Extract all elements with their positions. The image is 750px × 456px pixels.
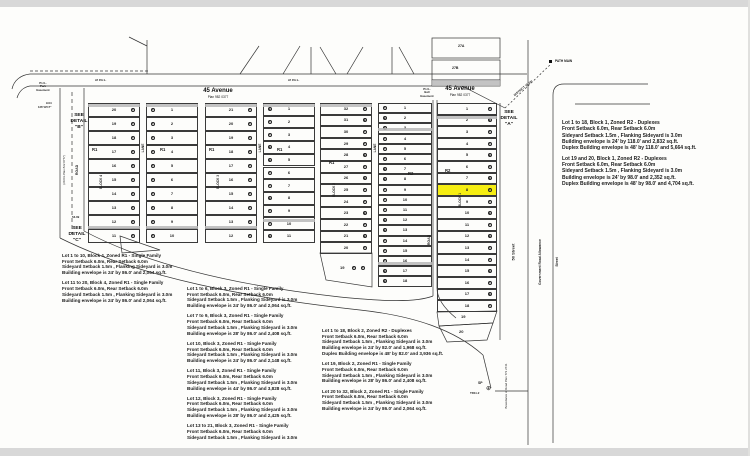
lot: 18 [88, 131, 140, 145]
lot: 23 [320, 207, 372, 219]
utility-circle [488, 234, 492, 238]
utility-circle [488, 176, 492, 180]
lot: 5 [263, 154, 315, 167]
lot: 13 [437, 242, 497, 254]
see-detail-a-callout: SEE DETAIL "A" [492, 110, 526, 129]
utility-circle [151, 220, 155, 224]
utility-circle [383, 208, 387, 212]
note-line: Building envelope is 24' by 86.0' and 2,… [62, 298, 172, 304]
parcel-27a-label: 27A [458, 44, 464, 48]
utility-circle [488, 165, 492, 169]
utility-circle [131, 220, 135, 224]
note-line: Duplex Building envelope is 48' by 82.0'… [322, 351, 443, 357]
utility-circle [488, 200, 492, 204]
easement-strip [205, 104, 257, 107]
lot: 4 [437, 138, 497, 150]
utility-circle [151, 178, 155, 182]
utility-circle [488, 223, 492, 227]
lot: 12 [378, 215, 432, 225]
easement-strip [88, 104, 140, 107]
note-paragraph: Lot 1 to 6, Block 3, Zoned R1 - Single F… [187, 286, 297, 309]
note-paragraph: Lot 7 to 9, Block 3, Zoned R1 - Single F… [187, 313, 297, 336]
utility-circle [363, 234, 367, 238]
block2-label: BLOCK 2 [332, 183, 336, 197]
utility-circle [488, 142, 492, 146]
note-line: Building envelope is 44' by 86.0' and 3,… [187, 386, 297, 392]
easement-note-west: P.U.L. Park Easement [32, 82, 54, 92]
lot: 16 [88, 159, 140, 173]
note-line: Building envelope is 28' by 86.0' and 2,… [322, 378, 443, 384]
block3-label: BLOCK 3 [216, 175, 220, 189]
street-plan: Plan 982 0377 [183, 95, 253, 99]
lot: 8 [378, 174, 432, 184]
block1-lot20-number: 20 [459, 329, 463, 334]
note-line: Sideyard Setback 1.5m , Flanking Sideyar… [187, 380, 297, 386]
utility-circle [268, 184, 272, 188]
note-paragraph: Lot 11, Block 3, Zoned R1 - Single Famil… [187, 368, 297, 391]
utility-circle [383, 167, 387, 171]
utility-circle [488, 211, 492, 215]
lot: 6 [146, 173, 198, 187]
street-label-50-street: 50 Street [511, 244, 516, 261]
lot: 15 [378, 246, 432, 256]
lot: 1 [378, 103, 432, 113]
utility-circle [383, 218, 387, 222]
note-line: Sideyard Setback 1.5m , Flanking Sideyar… [322, 400, 443, 406]
lot: 14 [88, 187, 140, 201]
lot: 31 [320, 115, 372, 127]
block2-lot19-number: 19 [340, 265, 344, 270]
easement-strip [320, 104, 372, 107]
utility-circle [151, 150, 155, 154]
lot: 5 [146, 159, 198, 173]
utility-circle [488, 304, 492, 308]
lot: 8 [263, 192, 315, 205]
lot: 14 [205, 201, 257, 215]
lot: 17 [205, 159, 257, 173]
easement-strip [146, 104, 198, 107]
note-line: Building envelope is 24' by 86.0' and 2,… [322, 406, 443, 412]
utility-circle [488, 153, 492, 157]
lot: 2 [146, 117, 198, 131]
lot: 3 [263, 128, 315, 141]
note-paragraph: Lot 19 and 20, Block 1, Zoned R2 - Duple… [562, 156, 696, 187]
utility-circle [248, 136, 252, 140]
block4-label: BLOCK 4 [99, 175, 103, 189]
sp-marker-id: TR11.2 [470, 391, 479, 395]
utility-circle [131, 108, 135, 112]
lot: 5 [378, 144, 432, 154]
lot: 6 [378, 154, 432, 164]
lot: 24 [320, 196, 372, 208]
lot: 16 [205, 173, 257, 187]
utility-circle [131, 122, 135, 126]
utility-circle [151, 108, 155, 112]
lot: 9 [378, 185, 432, 195]
lot: 14 [437, 254, 497, 266]
utility-circle [151, 234, 155, 238]
lot: 11 [378, 205, 432, 215]
zone-tag-r1-block4-left: R1 [92, 147, 97, 152]
lot: 11 [88, 229, 140, 243]
zoning-notes-block3: Lot 1 to 6, Block 3, Zoned R1 - Single F… [187, 286, 297, 445]
utility-circle [151, 136, 155, 140]
utility-circle [488, 292, 492, 296]
zone-tag-r1-block4-right: R1 [160, 147, 165, 152]
utility-circle [383, 157, 387, 161]
lot: 7 [378, 164, 432, 174]
note-paragraph: Lot 19, Block 2, Zoned R1 - Single Famil… [322, 361, 443, 384]
utility-circle [383, 177, 387, 181]
utility-circle [268, 133, 272, 137]
zoning-notes-block2: Lot 1 to 18, Block 2, Zoned R2 - Duplexe… [322, 328, 443, 416]
lot: 7 [437, 173, 497, 185]
utility-circle [383, 198, 387, 202]
lot: 8 [437, 184, 497, 196]
plat-sheet: 2019181716151413121112345678910212019181… [0, 0, 750, 456]
easement-strip [88, 226, 140, 229]
utility-circle [268, 222, 272, 226]
dimension-bearing: 126°19'17" [38, 106, 51, 109]
utility-circle [363, 188, 367, 192]
utility-circle [268, 234, 272, 238]
pul-label-east: 10 P.U.L. [288, 78, 299, 82]
zoning-notes-block1: Lot 1 to 18, Block 1, Zoned R2 - Duplexe… [562, 120, 696, 192]
lot: 4 [146, 145, 198, 159]
utility-circle [131, 234, 135, 238]
note-line: Sideyard Setback 1.5m , Flanking Sideyar… [187, 435, 297, 441]
lot: 1 [437, 103, 497, 115]
lot: 28 [320, 149, 372, 161]
utility-circle [268, 209, 272, 213]
utility-circle [383, 239, 387, 243]
utility-circle [363, 118, 367, 122]
utility-circle [488, 281, 492, 285]
street-far-label: Street [555, 257, 559, 266]
lot: 18 [378, 276, 432, 286]
note-line: Duplex Building envelope is 48' by 98.0'… [562, 181, 696, 187]
zone-tag-r1-block3-left: R1 [209, 147, 214, 152]
lot: 17 [378, 266, 432, 276]
lot: 3 [146, 131, 198, 145]
note-paragraph: Lot 1 to 18, Block 2, Zoned R2 - Duplexe… [322, 328, 443, 357]
lot: 9 [437, 196, 497, 208]
block1-label: BLOCK 1 [458, 193, 462, 207]
note-line: Sideyard Setback 1.5m , Flanking Sideyar… [62, 292, 172, 298]
utility-circle [383, 106, 387, 110]
lot: 17 [437, 289, 497, 301]
lot: 11 [263, 230, 315, 243]
see-detail-c-callout: SEE DETAIL "C" [61, 226, 93, 245]
note-paragraph: Lot 13 to 21, Block 3, Zoned R1 - Single… [187, 423, 297, 440]
utility-circle [248, 122, 252, 126]
note-paragraph: Lot 12, Block 3, Zoned R1 - Single Famil… [187, 396, 297, 419]
path-main-label: PATH MAIN [555, 59, 572, 63]
lane-label-block2: LANE [373, 144, 377, 153]
utility-circle [248, 108, 252, 112]
easement-strip [378, 262, 432, 265]
lot: 14 [378, 236, 432, 246]
block1-lot19-number: 19 [461, 314, 465, 319]
note-paragraph: Lot 1 to 10, Block 4, Zoned R1 - Single … [62, 253, 172, 276]
lot: 21 [320, 231, 372, 243]
utility-circle [151, 206, 155, 210]
see-detail-b-callout: SEE DETAIL "B" [63, 113, 95, 132]
utility-circle [248, 150, 252, 154]
utility-circle [248, 206, 252, 210]
lot: 5 [437, 149, 497, 161]
utility-circle [131, 136, 135, 140]
utility-circle [248, 164, 252, 168]
utility-circle [363, 211, 367, 215]
utility-circle [248, 192, 252, 196]
utility-circle [488, 130, 492, 134]
utility-circle [363, 246, 367, 250]
lot: 12 [205, 229, 257, 243]
utility-circle [488, 246, 492, 250]
note-paragraph: Lot 20 to 32, Block 2, Zoned R1 - Single… [322, 389, 443, 412]
utility-circle [131, 206, 135, 210]
note-line: Building envelope is 24' by 86.0' and 2,… [187, 358, 297, 364]
utility-circle [383, 228, 387, 232]
lot: 4 [263, 141, 315, 154]
road-left-plan-label: (20.0m Plan 822 0777) [62, 155, 66, 184]
utility-circle [363, 223, 367, 227]
utility-circle [363, 200, 367, 204]
lot: 2 [263, 116, 315, 129]
lot: 11 [437, 219, 497, 231]
note-line: Building envelope is 28' by 86.0' and 2,… [187, 331, 297, 337]
note-line: Building envelope is 24' by 86.0' and 2,… [62, 270, 172, 276]
lot: 13 [378, 225, 432, 235]
lot: 19 [205, 131, 257, 145]
lot: 10 [437, 207, 497, 219]
lot: 18 [437, 300, 497, 312]
note-line: Sideyard Setback 1.5m , Flanking Sideyar… [187, 325, 297, 331]
note-line: Lot 1 to 10, Block 4, Zoned R1 - Single … [62, 253, 172, 259]
lot: 10 [378, 195, 432, 205]
utility-circle [248, 178, 252, 182]
utility-circle [363, 130, 367, 134]
utility-circle [383, 279, 387, 283]
utility-circle [268, 196, 272, 200]
road-right-label: ROAD [427, 235, 431, 245]
utility-circle [363, 153, 367, 157]
road-left-label: ROAD [75, 165, 79, 175]
note-paragraph: Lot 10, Block 3, Zoned R1 - Single Famil… [187, 341, 297, 364]
dimension-5309: 53.09 [72, 215, 79, 219]
road-plan-boundary-note: Boundaries of Road Plan 772 2741 [504, 364, 508, 409]
utility-circle [268, 107, 272, 111]
utility-circle [131, 150, 135, 154]
lot: 26 [320, 173, 372, 185]
lot: 20 [320, 242, 372, 254]
utility-circle [151, 122, 155, 126]
lot: 30 [320, 126, 372, 138]
lot: 2 [378, 113, 432, 123]
lot: 15 [88, 173, 140, 187]
note-paragraph: Lot 11 to 20, Block 4, Zoned R1 - Single… [62, 280, 172, 303]
utility-circle [488, 258, 492, 262]
street-label-45-avenue-west: 45 Avenue Plan 982 0377 [183, 88, 253, 99]
utility-circle [383, 249, 387, 253]
utility-circle [363, 142, 367, 146]
utility-circle [131, 178, 135, 182]
zone-tag-r2-block1: R2 [445, 168, 450, 173]
lot: 16 [437, 277, 497, 289]
lane-label-block4: LANE [141, 144, 145, 153]
zone-tag-r1-block3-right: R1 [277, 147, 282, 152]
utility-circle [352, 266, 356, 270]
utility-circle [268, 158, 272, 162]
zone-tag-r1-block2: R1 [329, 160, 334, 165]
easement-strip [378, 128, 432, 131]
survey-monument-icon [549, 60, 552, 63]
utility-circle [248, 234, 252, 238]
utility-circle [383, 137, 387, 141]
pul-label-west: 10 P.U.L. [95, 78, 106, 82]
utility-circle [131, 192, 135, 196]
utility-circle [488, 269, 492, 273]
lot: 13 [88, 201, 140, 215]
lot: 3 [437, 126, 497, 138]
lot: 22 [320, 219, 372, 231]
utility-circle [268, 171, 272, 175]
utility-circle [268, 145, 272, 149]
dimension-904: 9.04 [46, 101, 52, 105]
lot: 27 [320, 161, 372, 173]
easement-strip [146, 226, 198, 229]
note-line: Sideyard Setback 1.5m , Flanking Sideyar… [562, 168, 696, 174]
note-line: Sideyard Setback 1.5m , Flanking Sideyar… [562, 133, 696, 139]
easement-strip [263, 104, 315, 107]
note-line: Building envelope is 24' by 86.0' and 2,… [187, 303, 297, 309]
lot: 7 [263, 179, 315, 192]
utility-circle [383, 269, 387, 273]
utility-circle [268, 120, 272, 124]
lot: 19 [88, 117, 140, 131]
lot: 4 [378, 134, 432, 144]
lane-label-block3: LANE [258, 144, 262, 153]
utility-circle [363, 107, 367, 111]
lot: 8 [146, 201, 198, 215]
utility-circle [361, 266, 365, 270]
utility-circle [248, 220, 252, 224]
lot: 20 [205, 117, 257, 131]
survey-marker-icon: ⊕ [486, 386, 491, 392]
utility-circle [488, 188, 492, 192]
note-line: Building envelope is 28' by 86.0' and 2,… [187, 413, 297, 419]
utility-circle [383, 147, 387, 151]
parcel-27b-label: 27B [452, 66, 458, 70]
lot: 29 [320, 138, 372, 150]
zone-tag-r2-block2: R2 [408, 171, 413, 176]
zoning-notes-block4: Lot 1 to 10, Block 4, Zoned R1 - Single … [62, 253, 172, 308]
utility-circle [363, 176, 367, 180]
lot: 12 [437, 231, 497, 243]
lot: 7 [146, 187, 198, 201]
lot: 6 [263, 167, 315, 180]
note-line: Duplex Building envelope is 48' by 118.0… [562, 145, 696, 151]
lot: 25 [320, 184, 372, 196]
easement-strip [263, 219, 315, 222]
note-line: Lot 1 to 6, Block 3, Zoned R1 - Single F… [187, 286, 297, 292]
utility-circle [131, 164, 135, 168]
utility-circle [383, 188, 387, 192]
utility-circle [383, 116, 387, 120]
lot: 9 [263, 205, 315, 218]
lot: 15 [437, 265, 497, 277]
government-road-allowance-label: Government Road Allowance [538, 239, 542, 285]
utility-circle [363, 165, 367, 169]
note-paragraph: Lot 1 to 18, Block 1, Zoned R2 - Duplexe… [562, 120, 696, 151]
utility-circle [151, 164, 155, 168]
easement-strip [437, 116, 497, 119]
lot: 10 [146, 229, 198, 243]
sp-marker-label: SP [478, 381, 483, 385]
utility-circle [151, 192, 155, 196]
easement-strip [205, 226, 257, 229]
lot: 15 [205, 187, 257, 201]
easement-note-east: P.U.L. Bell Easement [416, 88, 438, 98]
